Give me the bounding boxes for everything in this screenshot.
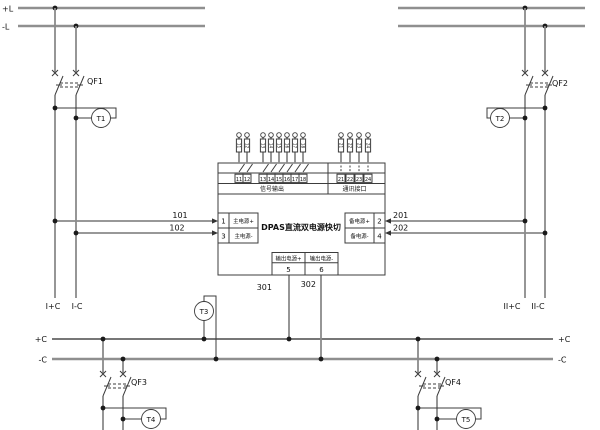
bus-plus-c-label-left: +C: [35, 335, 48, 344]
backup-minus-terminal-label: 备电源-: [350, 232, 368, 240]
signal-terminal-circle: [237, 133, 242, 138]
comm-wire-tag-text: 23: [357, 143, 362, 149]
t2-transducer: T2: [487, 106, 547, 128]
backup-power-block: 备电源+ 2 备电源- 4: [345, 213, 385, 243]
signal-terminal-num: 13: [260, 177, 266, 183]
junction-dot: [543, 231, 548, 236]
signal-wire-tag-text: 18: [301, 143, 306, 149]
bus-plus-c-label-right: +C: [558, 335, 571, 344]
qf3-label: QF3: [131, 378, 147, 387]
signal-terminal-num: 15: [276, 177, 282, 183]
junction-dot: [202, 337, 207, 342]
wire-201-label: 201: [393, 211, 408, 220]
comm-terminal-num: 22: [347, 177, 353, 183]
t4-label: T4: [146, 416, 156, 424]
junction-dot: [101, 406, 106, 411]
signal-wire-tag-text: 12: [245, 143, 250, 149]
signal-terminal-num: 16: [284, 177, 290, 183]
out-minus-terminal-label: 输出电源-: [310, 254, 334, 262]
wire-101-102: [55, 221, 213, 233]
junction-dot: [214, 357, 219, 362]
junction-dot: [74, 231, 79, 236]
wire-101-label: 101: [172, 211, 187, 220]
wire-202-label: 202: [393, 224, 408, 233]
bus-plus-l-label: +L: [2, 5, 14, 14]
signal-terminal-num: 11: [236, 177, 242, 183]
feeder-ii-minus-label: II-C: [531, 302, 545, 311]
wire-201-202: [391, 221, 545, 233]
signal-wire-tag-text: 13: [261, 143, 266, 149]
t1-label: T1: [96, 115, 106, 123]
signal-terminal-num: 17: [292, 177, 298, 183]
signal-wire-tag-text: 11: [237, 143, 242, 149]
comm-wire-tag-text: 24: [366, 143, 371, 149]
main-power-block: 1 主电源+ 3 主电源-: [218, 213, 258, 243]
comm-terminal-num: 24: [365, 177, 371, 183]
backup-plus-terminal-label: 备电源+: [349, 217, 370, 225]
signal-terminal-circle: [301, 133, 306, 138]
comm-terminal-num: 23: [356, 177, 362, 183]
schematic-canvas: +L -L I+C I-C QF1 T1 101 102: [0, 0, 600, 430]
junction-dot: [435, 417, 440, 422]
qf1-contacts: [52, 70, 84, 95]
qf4-label: QF4: [445, 378, 461, 387]
comm-terminal-circle: [366, 133, 371, 138]
qf3-wires: [103, 339, 123, 430]
junction-dot: [121, 417, 126, 422]
comm-wire-tag-text: 22: [348, 143, 353, 149]
qf4-branch: QF4 T5: [415, 337, 481, 430]
signal-output-caption: 信号输出: [260, 185, 284, 193]
t1-transducer: T1: [53, 106, 116, 128]
qf2-breaker: QF2: [522, 70, 568, 95]
comm-terminal-num: 21: [338, 177, 344, 183]
comm-wire-tag-text: 21: [339, 143, 344, 149]
junction-dot: [543, 106, 548, 111]
signal-terminal-num: 18: [300, 177, 306, 183]
junction-dot: [523, 116, 528, 121]
terminal-arrow: [385, 218, 391, 223]
feeder-ii-plus-label: II+C: [503, 302, 520, 311]
main-plus-terminal-num: 1: [221, 218, 225, 226]
signal-terminal-num: 12: [244, 177, 250, 183]
feeder-ii-wires: II+C II-C: [503, 8, 545, 311]
t5-label: T5: [461, 416, 471, 424]
main-minus-terminal-num: 3: [221, 233, 225, 241]
qf4-contacts: [415, 371, 445, 396]
comm-terminal-circle: [357, 133, 362, 138]
signal-terminal-num: 14: [268, 177, 274, 183]
out-plus-terminal-num: 5: [286, 266, 290, 274]
signal-terminal-circle: [285, 133, 290, 138]
bus-minus-l-label: -L: [2, 23, 10, 32]
qf2-label: QF2: [552, 79, 568, 88]
qf2-contacts: [522, 70, 553, 95]
bus-minus-c-label-right: -C: [558, 356, 567, 365]
qf1-breaker: QF1: [52, 70, 103, 95]
signal-terminal-circle: [269, 133, 274, 138]
junction-dot: [435, 357, 440, 362]
comm-terminal-circle: [348, 133, 353, 138]
bottom-bus-group: +C -C +C -C: [35, 335, 571, 365]
bus-minus-c-label-left: -C: [39, 356, 48, 365]
output-power-block: 输出电源+ 输出电源- 5 6: [272, 253, 338, 276]
dc-dual-power-schematic: +L -L I+C I-C QF1 T1 101 102: [0, 0, 600, 430]
junction-dot: [319, 357, 324, 362]
qf3-contacts: [100, 371, 131, 396]
wire-301-label: 301: [257, 283, 272, 292]
junction-dot: [74, 116, 79, 121]
wire-102-label: 102: [169, 224, 184, 233]
backup-input-wires: 201 202: [385, 211, 547, 236]
signal-wire-tag-text: 15: [277, 143, 282, 149]
qf1-label: QF1: [87, 77, 103, 86]
backup-minus-terminal-num: 4: [377, 233, 382, 241]
feeder-ii-drop-wires: [525, 8, 545, 298]
junction-dot: [523, 219, 528, 224]
signal-wire-tag-text: 17: [293, 143, 298, 149]
top-left-bus-group: +L -L: [2, 5, 205, 32]
t3-label: T3: [199, 308, 209, 316]
feeder-i-drop-wires: [55, 8, 76, 298]
signal-terminal-circle: [293, 133, 298, 138]
signal-terminal-circle: [277, 133, 282, 138]
terminal-arrow: [212, 218, 218, 223]
feeder-i-minus-label: I-C: [72, 302, 83, 311]
wire-302-label: 302: [301, 280, 316, 289]
signal-terminal-circle: [261, 133, 266, 138]
output-wires: 301 302: [257, 275, 324, 361]
feeder-i-wires: I+C I-C: [46, 8, 83, 311]
junction-dot: [53, 106, 58, 111]
junction-dot: [287, 337, 292, 342]
comm-terminal-circle: [339, 133, 344, 138]
feeder-i-plus-label: I+C: [46, 302, 61, 311]
main-plus-terminal-label: 主电源+: [233, 217, 254, 225]
main-minus-terminal-label: 主电源-: [234, 232, 252, 240]
out-minus-terminal-num: 6: [319, 266, 324, 274]
t3-transducer: T3: [195, 296, 219, 361]
top-right-bus-group: [398, 6, 585, 29]
backup-plus-terminal-num: 2: [377, 218, 381, 226]
qf4-wires: [418, 339, 437, 430]
signal-terminal-circle: [245, 133, 250, 138]
signal-wire-tag-text: 14: [269, 143, 274, 149]
t2-label: T2: [495, 115, 505, 123]
comm-leads: [341, 137, 368, 163]
junction-dot: [53, 219, 58, 224]
dpas-module: DPAS直流双电源快切 11 12 13 14 15 16: [218, 133, 385, 275]
signal-wire-tag-text: 16: [285, 143, 290, 149]
junction-dot: [121, 357, 126, 362]
junction-dot: [416, 337, 421, 342]
junction-dot: [101, 337, 106, 342]
terminal-arrow: [385, 230, 391, 235]
module-title: DPAS直流双电源快切: [261, 222, 341, 232]
main-input-wires: 101 102: [53, 211, 218, 236]
qf3-branch: QF3 T4: [100, 337, 166, 430]
out-plus-terminal-label: 输出电源+: [275, 254, 301, 262]
terminal-arrow: [212, 230, 218, 235]
junction-dot: [416, 406, 421, 411]
comm-port-caption: 通讯接口: [342, 185, 366, 193]
